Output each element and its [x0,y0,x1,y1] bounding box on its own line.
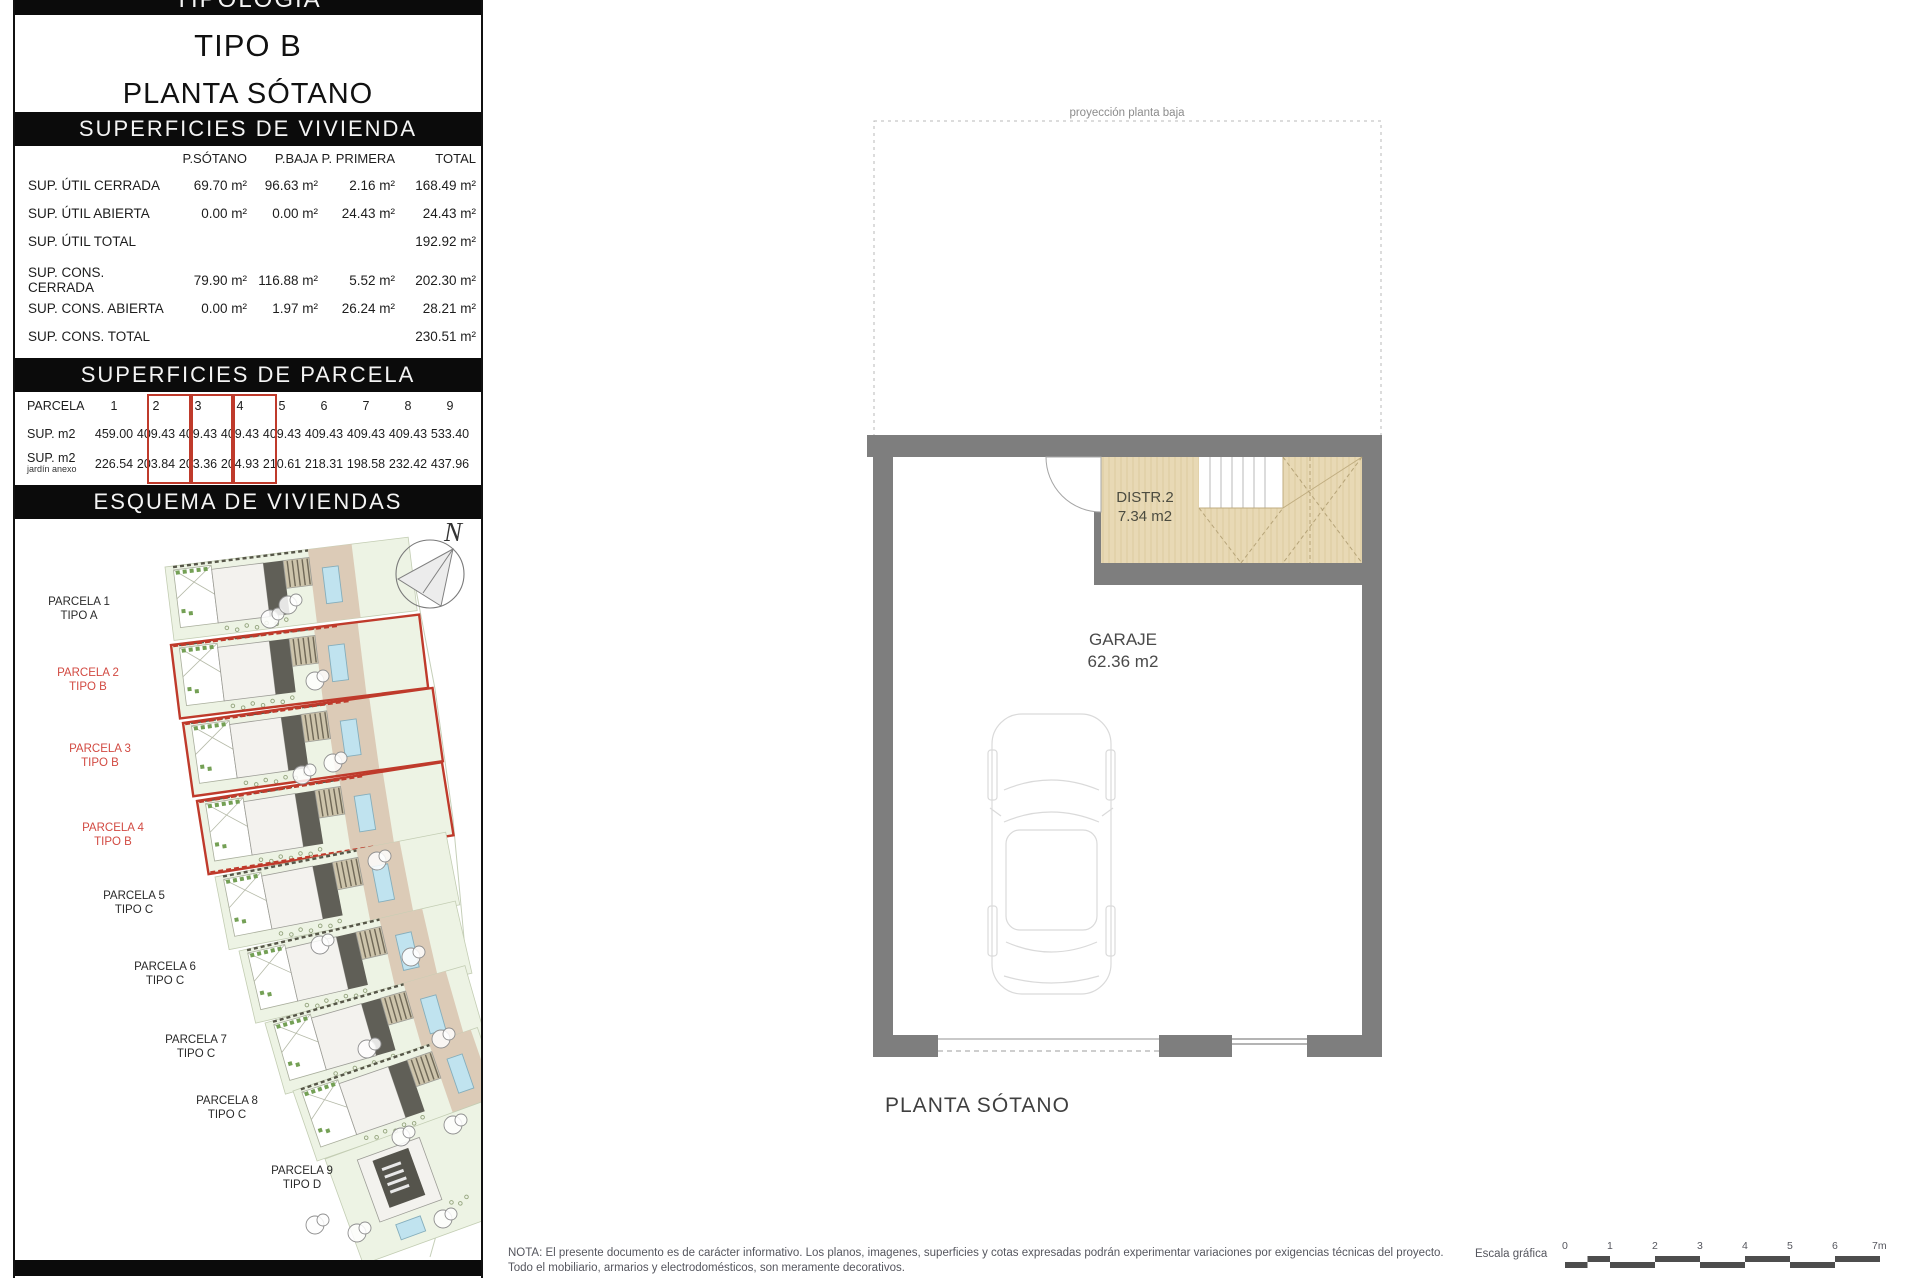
table-row: SUP. CONS. ABIERTA 0.00 m² 1.97 m² 26.24… [15,294,481,322]
parcel-label-3: PARCELA 3TIPO B [69,742,131,770]
plan-caption: PLANTA SÓTANO [885,1094,1070,1117]
col-psotano: P.SÓTANO [173,151,247,166]
panel-bottom-bar [15,1260,481,1276]
parcel-label-2: PARCELA 2TIPO B [57,666,119,694]
parcel-label-8: PARCELA 8TIPO C [196,1094,258,1122]
graphic-scale: 0 1 2 3 4 5 6 7m [1560,1240,1900,1280]
note-line-2: Todo el mobiliario, armarios y electrodo… [508,1261,1458,1276]
car-icon [988,714,1115,994]
wall-right [1362,435,1382,1057]
wall-top [867,435,1382,457]
parcel-label-7: PARCELA 7TIPO C [165,1033,227,1061]
table-row: SUP. ÚTIL TOTAL 192.92 m² [15,227,481,255]
stair-room-name: DISTR.2 [1116,489,1174,506]
footer-note: NOTA: El presente documento es de caráct… [508,1246,1458,1276]
parcel-label-4: PARCELA 4TIPO B [82,821,144,849]
type-title: TIPO B [15,28,481,64]
table-row: SUP. ÚTIL ABIERTA 0.00 m² 0.00 m² 24.43 … [15,199,481,227]
projection-label: proyección planta baja [1069,107,1185,119]
stair-room-area: 7.34 m2 [1118,508,1172,525]
page: { "panel": { "top_bar": "TIPOLOGÍA", "ti… [0,0,1920,1280]
wall-bottom-middle [1159,1035,1232,1057]
tipologia-bar: TIPOLOGÍA [15,0,481,15]
parcel-label-1: PARCELA 1TIPO A [48,595,110,623]
parcela-header-bar: SUPERFICIES DE PARCELA [15,358,481,392]
note-line-1: NOTA: El presente documento es de caráct… [508,1246,1458,1261]
table-row: SUP. CONS. CERRADA 79.90 m² 116.88 m² 5.… [15,266,481,294]
wall-bottom-left [873,1035,938,1057]
floor-plan: proyección planta baja [860,100,1420,1135]
parcel-label-6: PARCELA 6TIPO C [134,960,196,988]
wall-stair-room-left [1094,507,1101,563]
highlight-box-parcela-4 [231,394,277,484]
vivienda-header-row: P.SÓTANO P.BAJA P. PRIMERA TOTAL [15,146,481,171]
garage-door-opening [938,1039,1159,1051]
highlight-box-parcela-3 [189,394,235,484]
wall-bottom-right [1307,1035,1382,1057]
floor-plan-drawing: proyección planta baja [860,100,1420,1135]
stair-void [1199,457,1283,508]
parcela-header: SUPERFICIES DE PARCELA [81,362,416,388]
door-swing [1046,457,1101,512]
vivienda-header-bar: SUPERFICIES DE VIVIENDA [15,112,481,146]
stair-room: DISTR.2 7.34 m2 [1101,457,1362,563]
table-row: SUP. CONS. TOTAL 230.51 m² [15,322,481,350]
tipologia-title: TIPOLOGÍA [174,0,321,14]
spec-panel: TIPOLOGÍA TIPO B PLANTA SÓTANO SUPERFICI… [13,0,483,1278]
parcel-label-9: PARCELA 9TIPO D [271,1164,333,1192]
scale-label: Escala gráfica [1475,1248,1547,1260]
compass-north-letter: N [443,519,464,547]
col-total: TOTAL [395,151,476,166]
garage-name: GARAJE [1089,630,1157,649]
wall-stair-room-bottom [1094,563,1382,585]
col-pbaja: P.BAJA [247,151,318,166]
wall-left [873,435,893,1057]
highlight-box-parcela-2 [147,394,193,484]
esquema-header-bar: ESQUEMA DE VIVIENDAS [15,485,481,519]
title-block: TIPO B PLANTA SÓTANO [15,16,481,111]
garage-area: 62.36 m2 [1088,652,1159,671]
floor-title: PLANTA SÓTANO [15,78,481,111]
esquema-header: ESQUEMA DE VIVIENDAS [94,489,403,515]
parcela-table: PARCELA 1 2 3 4 5 6 7 8 9 SUP. m2 459.00… [15,392,483,480]
site-plan-drawing: N [15,519,481,1260]
upper-floor-projection-outline [874,121,1381,451]
site-plan: N PARCELA 1TIPO A PARCELA 2TIPO B PARCEL… [15,519,481,1260]
table-row: SUP. ÚTIL CERRADA 69.70 m² 96.63 m² 2.16… [15,171,481,199]
vivienda-header: SUPERFICIES DE VIVIENDA [79,116,417,142]
col-pprimera: P. PRIMERA [318,151,395,166]
scale-bar-segments [1560,1254,1900,1274]
vivienda-table: P.SÓTANO P.BAJA P. PRIMERA TOTAL SUP. ÚT… [15,146,481,350]
window-opening [1232,1039,1307,1044]
parcel-label-5: PARCELA 5TIPO C [103,889,165,917]
